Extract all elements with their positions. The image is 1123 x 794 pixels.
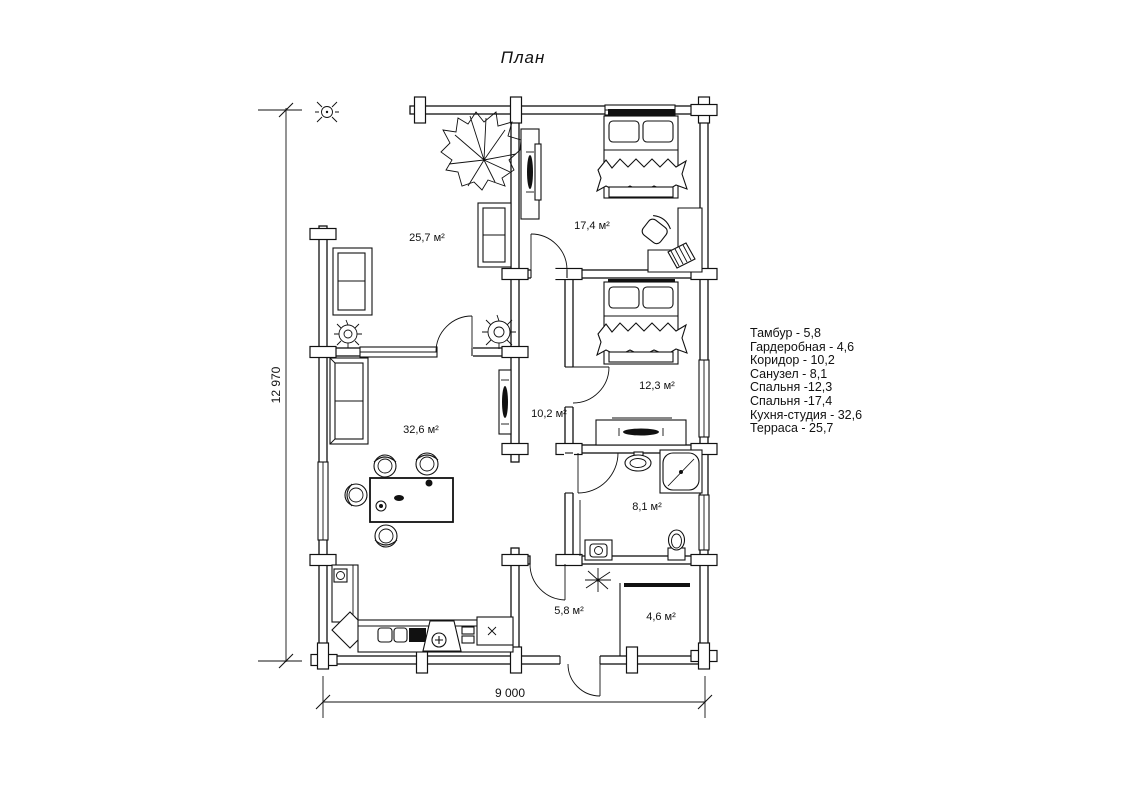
stove [409, 628, 426, 642]
bedroom-12-door [573, 367, 609, 403]
shower-cabin [660, 450, 702, 493]
dimension-vertical: 12 970 [258, 103, 302, 668]
terrace-sofa-left [333, 248, 372, 315]
bathroom-sink [625, 452, 651, 471]
legend-item-terrace: Терраса - 25,7 [750, 422, 862, 436]
entrance-door [568, 664, 600, 696]
room-label-tambour: 5,8 м² [554, 605, 584, 617]
dresser-tv [596, 418, 686, 445]
terrace-sofa-right [478, 203, 511, 267]
terrace-plant-left [334, 320, 362, 348]
room-label-corridor: 10,2 м² [531, 408, 567, 420]
bathroom-window [699, 495, 709, 550]
dimension-horizontal-value: 9 000 [495, 686, 525, 700]
legend-item-kitchen: Кухня-студия - 32,6 [750, 409, 862, 423]
kitchen-counter [332, 565, 513, 652]
legend-item-bedroom-12: Спальня -12,3 [750, 381, 862, 395]
washing-machine [585, 540, 612, 560]
toilet [668, 530, 685, 560]
dimension-vertical-value: 12 970 [269, 366, 283, 403]
living-room-tv [499, 370, 511, 434]
hob-module [423, 621, 461, 651]
legend-item-corridor: Коридор - 10,2 [750, 354, 862, 368]
bed-double-12 [597, 279, 687, 364]
kitchen-window [318, 462, 328, 540]
dining-table [370, 478, 453, 522]
floor-plan-sheet: План [0, 0, 1123, 794]
terrace-window [360, 347, 437, 357]
room-label-bedroom-17: 17,4 м² [574, 220, 610, 232]
coat-rack-symbol [585, 568, 611, 592]
desk-chair [640, 213, 672, 246]
legend-item-bedroom-17: Спальня -17,4 [750, 395, 862, 409]
bed-double-17 [597, 109, 687, 198]
room-label-terrace: 25,7 м² [409, 232, 445, 244]
dishwasher [477, 617, 513, 645]
tambour-door [530, 564, 565, 600]
room-label-kitchen: 32,6 м² [403, 424, 439, 436]
legend-item-bathroom: Санузел - 8,1 [750, 368, 862, 382]
room-label-bedroom-12: 12,3 м² [639, 380, 675, 392]
bedroom-17-wardrobe-tv [521, 129, 541, 219]
room-label-bathroom: 8,1 м² [632, 501, 662, 513]
dimension-horizontal: 9 000 [316, 676, 712, 718]
terrace-tree [441, 112, 521, 190]
legend-item-tambour: Тамбур - 5,8 [750, 327, 862, 341]
room-label-wardrobe: 4,6 м² [646, 611, 676, 623]
axis-marker [315, 102, 339, 122]
bedroom-17-door [531, 234, 567, 270]
kitchen-corner-sofa [330, 358, 368, 444]
legend-item-wardrobe: Гардеробная - 4,6 [750, 341, 862, 355]
terrace-door [436, 316, 472, 352]
bathroom-door [578, 453, 618, 493]
floor-plan-drawing: 12 970 9 000 25,7 м² 17,4 м² 12,3 м² 10,… [0, 0, 1123, 794]
bedroom-12-window [699, 360, 709, 437]
room-legend: Тамбур - 5,8 Гардеробная - 4,6 Коридор -… [750, 327, 862, 436]
